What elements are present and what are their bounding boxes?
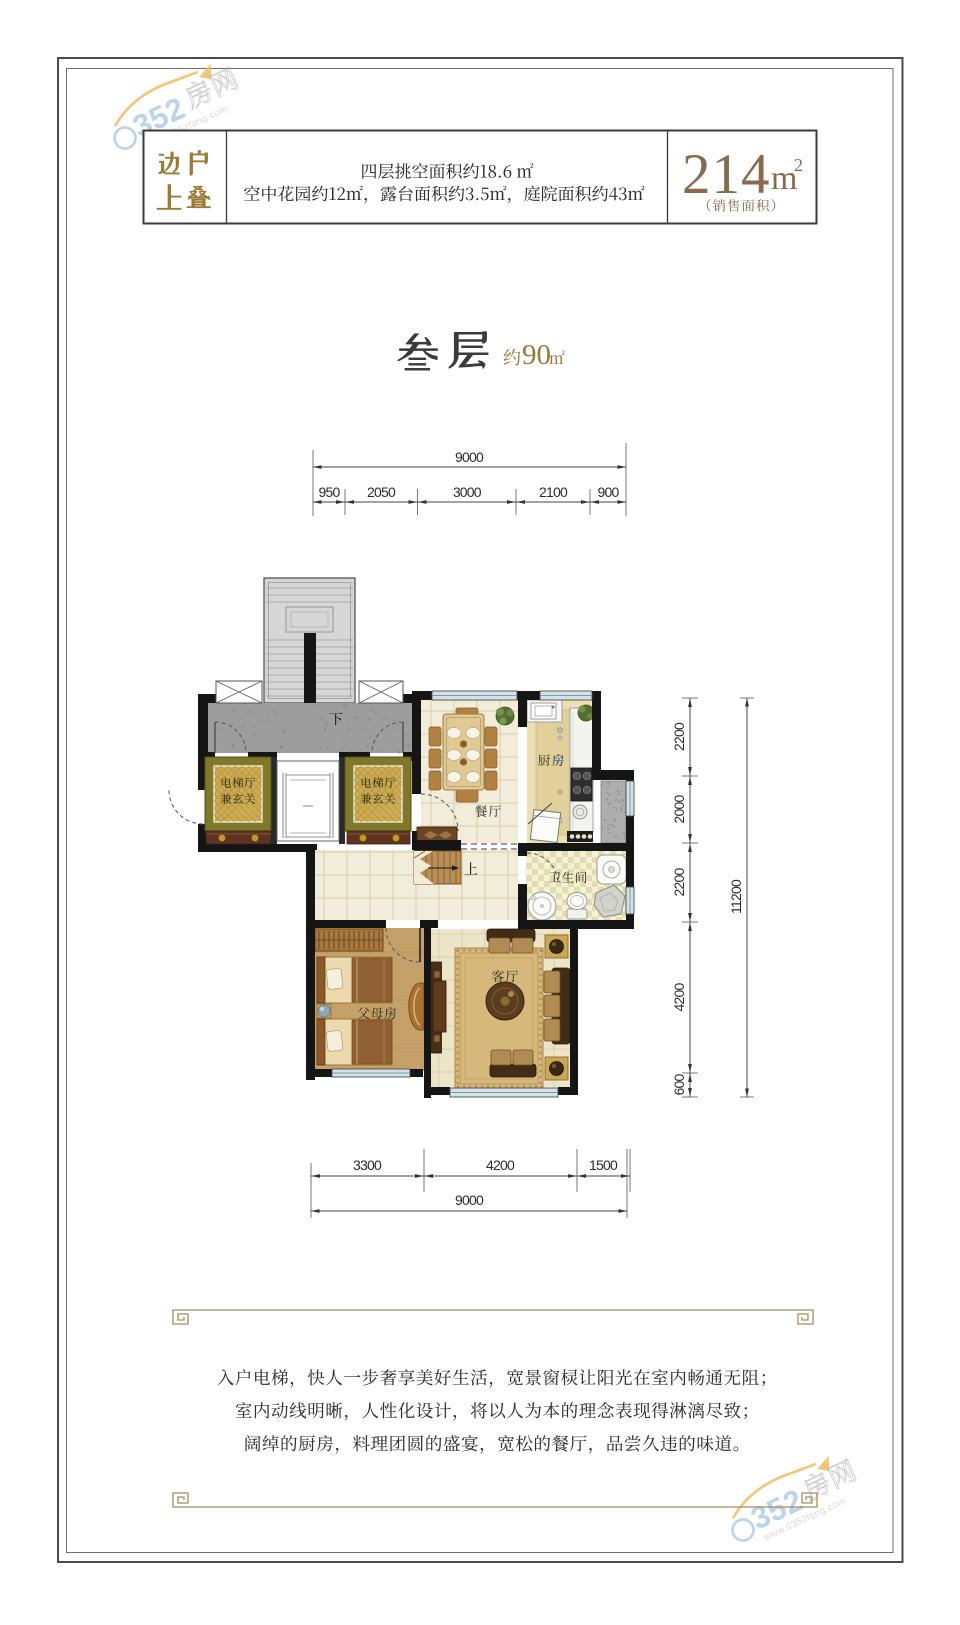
svg-text:2200: 2200 [671,722,687,751]
svg-text:2050: 2050 [367,484,396,500]
svg-text:11200: 11200 [728,879,744,914]
svg-text:4200: 4200 [671,983,687,1012]
svg-text:2200: 2200 [671,868,687,897]
svg-text:900: 900 [598,484,620,500]
svg-text:600: 600 [671,1074,687,1096]
svg-text:3000: 3000 [453,484,482,500]
svg-text:4200: 4200 [486,1157,515,1173]
svg-text:2100: 2100 [539,484,568,500]
svg-text:950: 950 [319,484,341,500]
svg-text:9000: 9000 [455,1192,484,1208]
svg-text:2: 2 [794,155,803,175]
svg-text:214: 214 [682,143,771,206]
svg-text:1500: 1500 [589,1157,618,1173]
svg-text:90: 90 [522,339,551,371]
svg-text:9000: 9000 [455,449,484,465]
svg-text:2000: 2000 [671,795,687,824]
svg-text:3300: 3300 [353,1157,382,1173]
